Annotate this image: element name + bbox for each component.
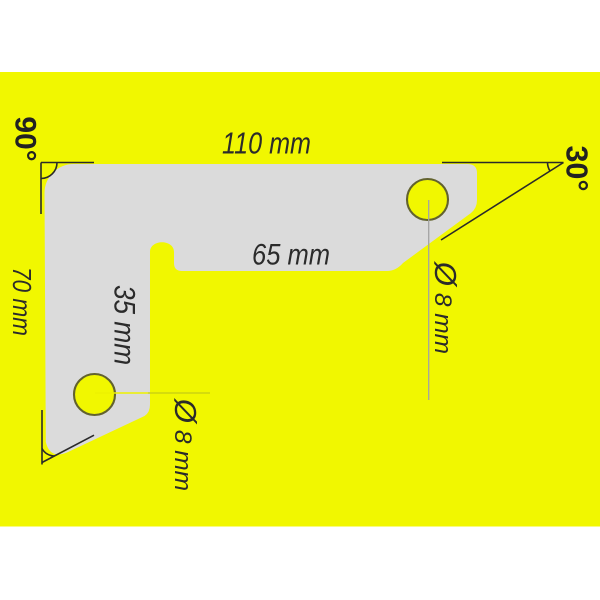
svg-text:110 mm: 110 mm — [222, 126, 311, 161]
svg-text:30°: 30° — [560, 145, 594, 191]
svg-text:90°: 90° — [9, 116, 42, 161]
svg-text:35 mm: 35 mm — [108, 285, 141, 365]
svg-text:65 mm: 65 mm — [252, 239, 330, 272]
svg-text:70 mm: 70 mm — [7, 267, 37, 336]
